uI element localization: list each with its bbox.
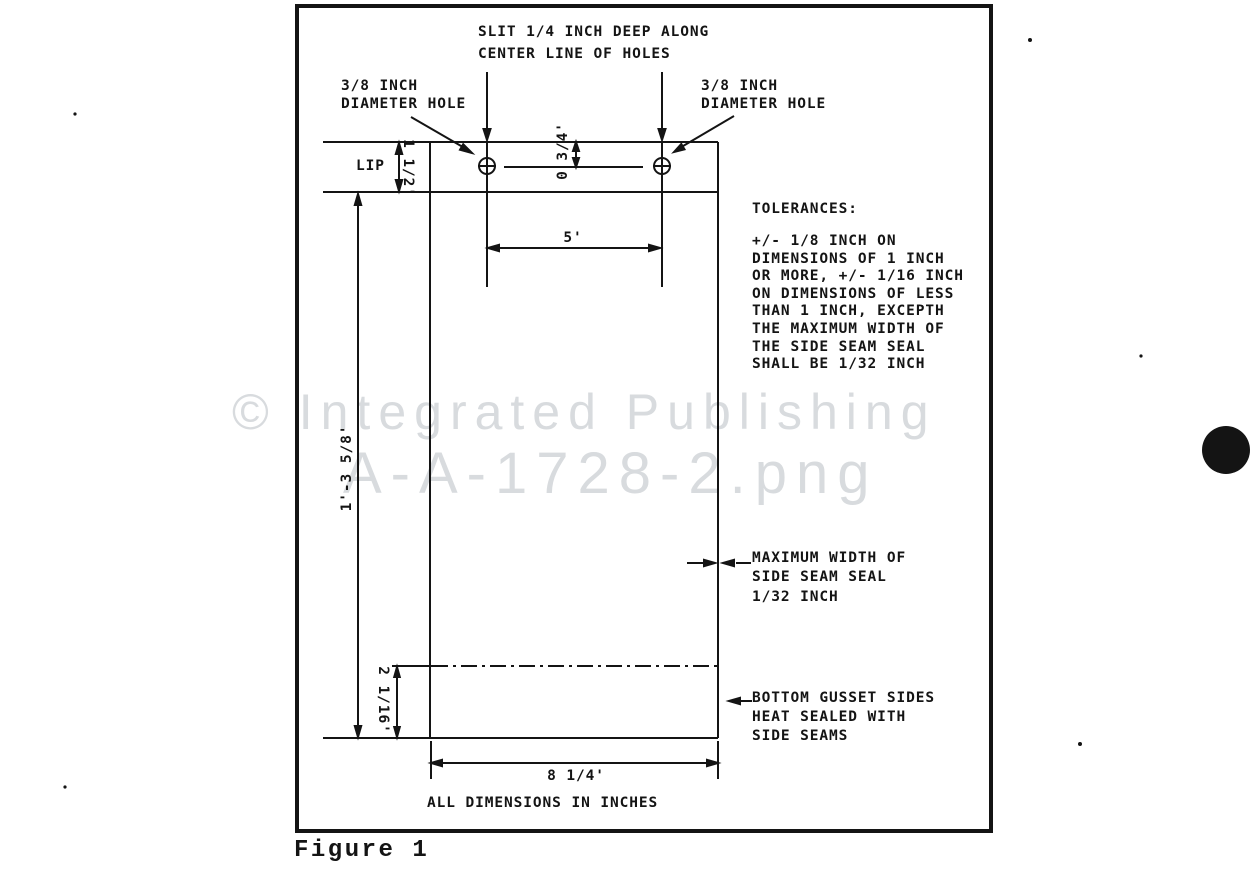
hole-note-right: 3/8 INCH DIAMETER HOLE bbox=[701, 77, 826, 113]
scanned-figure-page: © Integrated Publishing A-A-1728-2.png bbox=[0, 0, 1251, 888]
leader-arrow-hole-right bbox=[674, 116, 734, 152]
hole-note-left-line2: DIAMETER HOLE bbox=[341, 95, 466, 113]
dim-hole-offset bbox=[573, 142, 579, 167]
slit-note: SLIT 1/4 INCH DEEP ALONG CENTER LINE OF … bbox=[478, 22, 709, 65]
tolerances-body: +/- 1/8 INCH ON DIMENSIONS OF 1 INCH OR … bbox=[752, 233, 964, 374]
tolerances-line: ON DIMENSIONS OF LESS bbox=[752, 286, 964, 304]
tolerances-line: THAN 1 INCH, EXCEPTH bbox=[752, 303, 964, 321]
gusset-note-line2: HEAT SEALED WITH bbox=[752, 708, 935, 727]
dim-gusset-depth bbox=[394, 667, 400, 737]
hole-note-left-line1: 3/8 INCH bbox=[341, 77, 466, 95]
hole-note-left: 3/8 INCH DIAMETER HOLE bbox=[341, 77, 466, 113]
tolerances-line: DIMENSIONS OF 1 INCH bbox=[752, 251, 964, 269]
dim-label-lip-height: 1 1/2' bbox=[399, 139, 417, 197]
tolerances-line: SHALL BE 1/32 INCH bbox=[752, 356, 964, 374]
punch-hole-dot bbox=[1202, 426, 1250, 474]
tolerances-line: THE SIDE SEAM SEAL bbox=[752, 339, 964, 357]
dim-label-bag-length: 1'-3 5/8' bbox=[338, 425, 356, 512]
tolerances-line: THE MAXIMUM WIDTH OF bbox=[752, 321, 964, 339]
scan-specks bbox=[63, 38, 1142, 789]
dim-label-gusset-depth: 2 1/16' bbox=[374, 666, 392, 733]
lip-label: LIP bbox=[356, 157, 385, 175]
bag-outline bbox=[323, 142, 718, 738]
tolerances-title: TOLERANCES: bbox=[752, 200, 858, 218]
dim-label-hole-offset: 0 3/4' bbox=[554, 122, 572, 180]
dim-label-bag-width: 8 1/4' bbox=[547, 767, 605, 785]
gusset-note: BOTTOM GUSSET SIDES HEAT SEALED WITH SID… bbox=[752, 689, 935, 745]
figure-caption: Figure 1 bbox=[294, 838, 429, 864]
hole-note-right-line1: 3/8 INCH bbox=[701, 77, 826, 95]
tolerances-line: OR MORE, +/- 1/16 INCH bbox=[752, 268, 964, 286]
slit-arrow-right bbox=[659, 72, 666, 140]
slit-arrow-left bbox=[484, 72, 491, 140]
leader-arrow-hole-left bbox=[411, 117, 472, 153]
seam-note-line3: 1/32 INCH bbox=[752, 588, 906, 607]
tolerances-line: +/- 1/8 INCH ON bbox=[752, 233, 964, 251]
gusset-note-arrow bbox=[729, 698, 752, 704]
footer-note: ALL DIMENSIONS IN INCHES bbox=[427, 794, 658, 812]
hole-note-right-line2: DIAMETER HOLE bbox=[701, 95, 826, 113]
gusset-note-line1: BOTTOM GUSSET SIDES bbox=[752, 689, 935, 708]
technical-drawing bbox=[0, 0, 1251, 888]
seam-note-line2: SIDE SEAM SEAL bbox=[752, 568, 906, 587]
gusset-note-line3: SIDE SEAMS bbox=[752, 727, 935, 746]
seam-note: MAXIMUM WIDTH OF SIDE SEAM SEAL 1/32 INC… bbox=[752, 549, 906, 607]
dim-label-hole-spacing: 5' bbox=[563, 229, 582, 247]
slit-note-line2: CENTER LINE OF HOLES bbox=[478, 44, 709, 66]
slit-note-line1: SLIT 1/4 INCH DEEP ALONG bbox=[478, 22, 709, 44]
seam-note-line1: MAXIMUM WIDTH OF bbox=[752, 549, 906, 568]
